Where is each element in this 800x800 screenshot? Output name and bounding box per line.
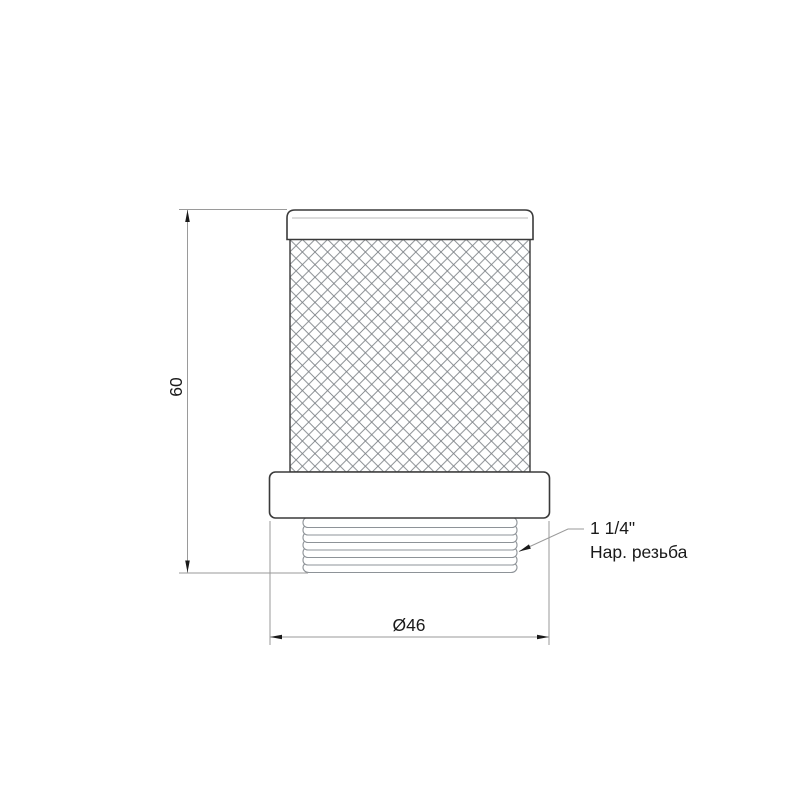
filter-top-cap	[287, 210, 533, 240]
strainer-drawing: 60 Ø46 1 1/4" Нар. резьба	[0, 0, 800, 800]
height-dimension-label: 60	[166, 377, 186, 397]
technical-drawing-page: 60 Ø46 1 1/4" Нар. резьба	[0, 0, 800, 800]
diameter-arrow-left	[270, 635, 282, 640]
filter-flange	[270, 472, 550, 518]
filter-mesh-body	[290, 239, 530, 472]
thread-ridge	[303, 518, 517, 528]
body-outlines	[270, 210, 550, 518]
diameter-dimension-label: Ø46	[392, 615, 425, 635]
thread-type-label: Нар. резьба	[590, 542, 688, 562]
thread-size-label: 1 1/4"	[590, 518, 635, 538]
height-arrow-bottom	[185, 561, 190, 573]
diameter-arrow-right	[537, 635, 549, 640]
leader-arrow	[518, 544, 531, 553]
thread-section	[303, 518, 517, 573]
height-arrow-top	[185, 210, 190, 222]
